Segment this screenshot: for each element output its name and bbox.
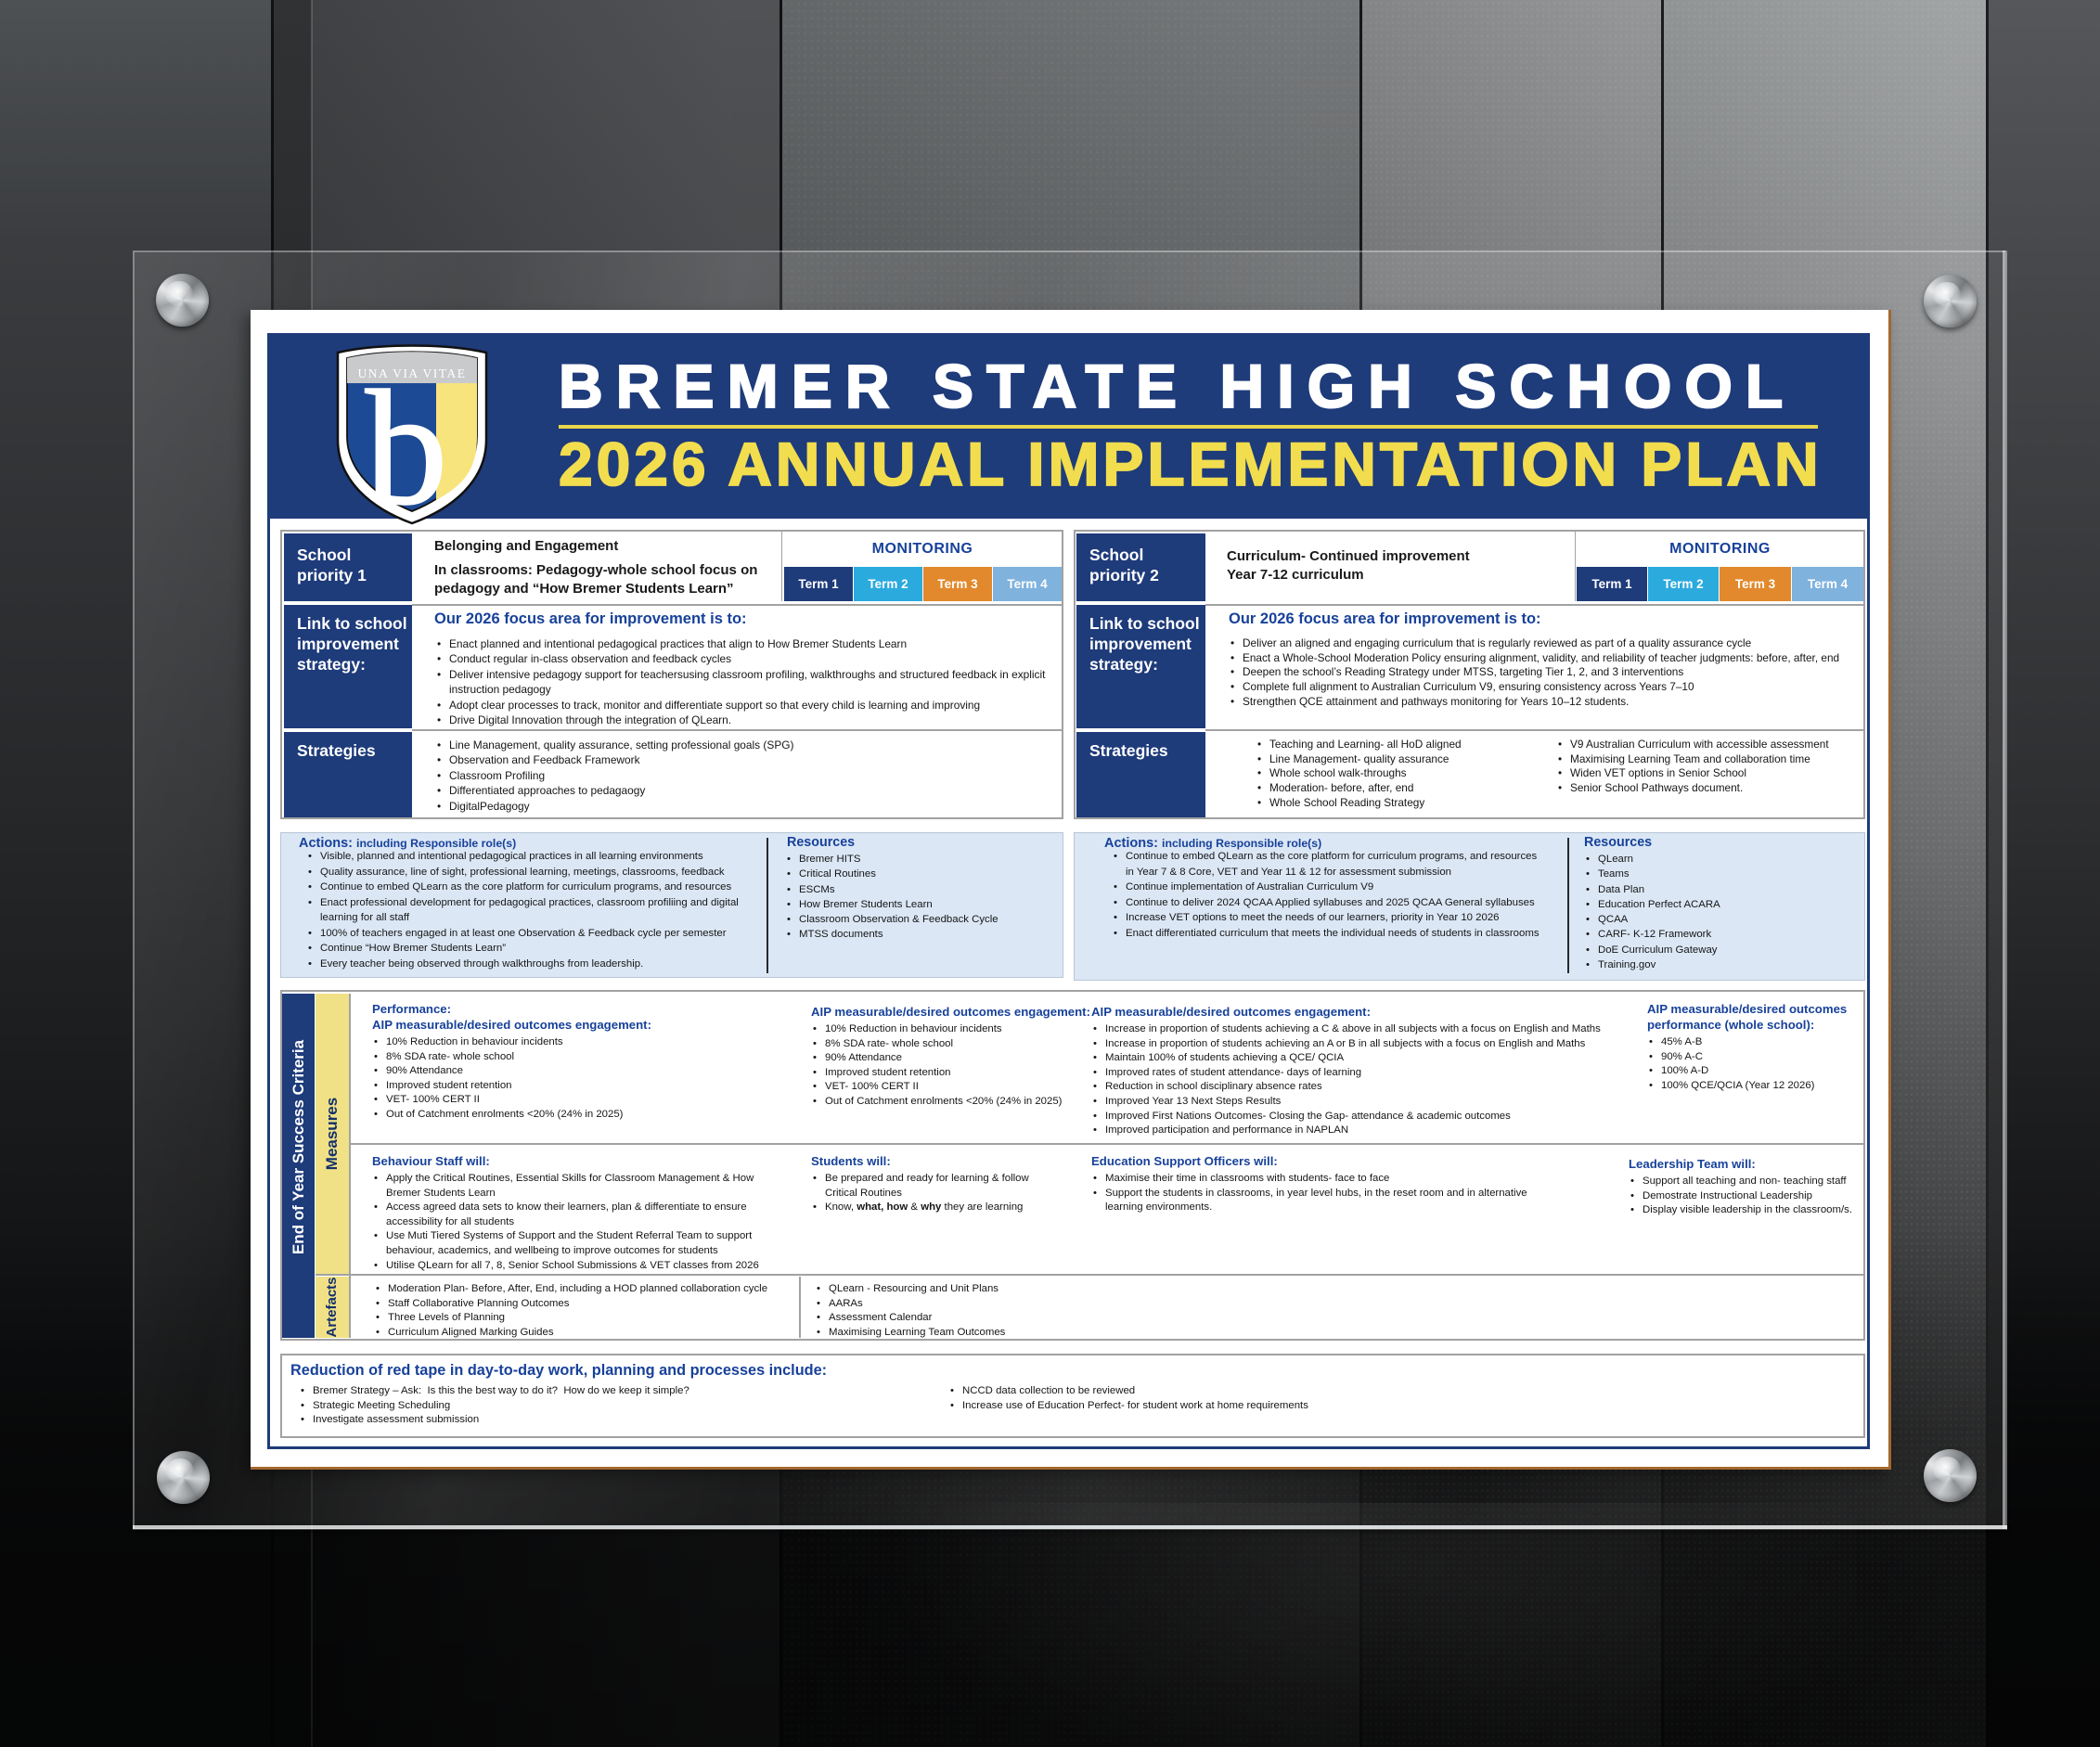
- svg-text:b: b: [366, 357, 448, 527]
